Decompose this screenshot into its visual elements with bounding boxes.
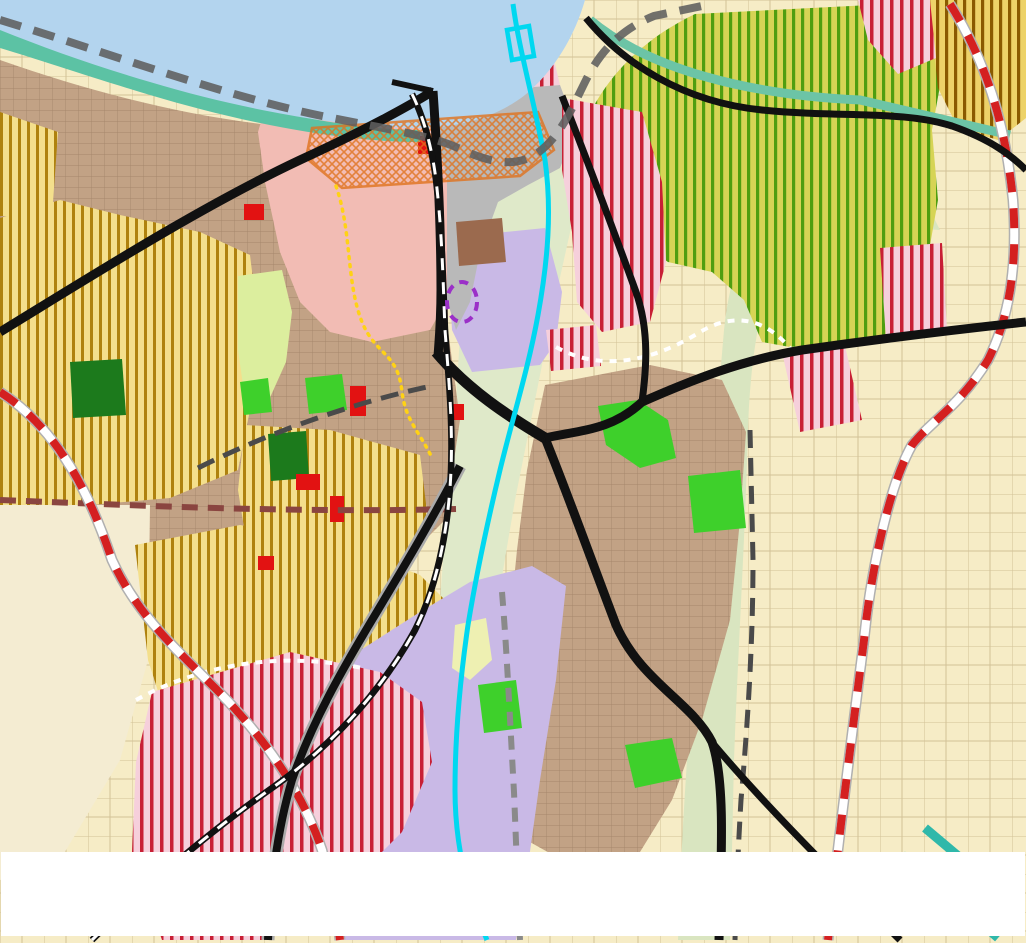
legend-text <box>1 852 1025 936</box>
zoning-map: { "map": { "street_labels": [ {"text":"у… <box>0 0 1026 943</box>
map-annotations <box>0 0 1026 943</box>
